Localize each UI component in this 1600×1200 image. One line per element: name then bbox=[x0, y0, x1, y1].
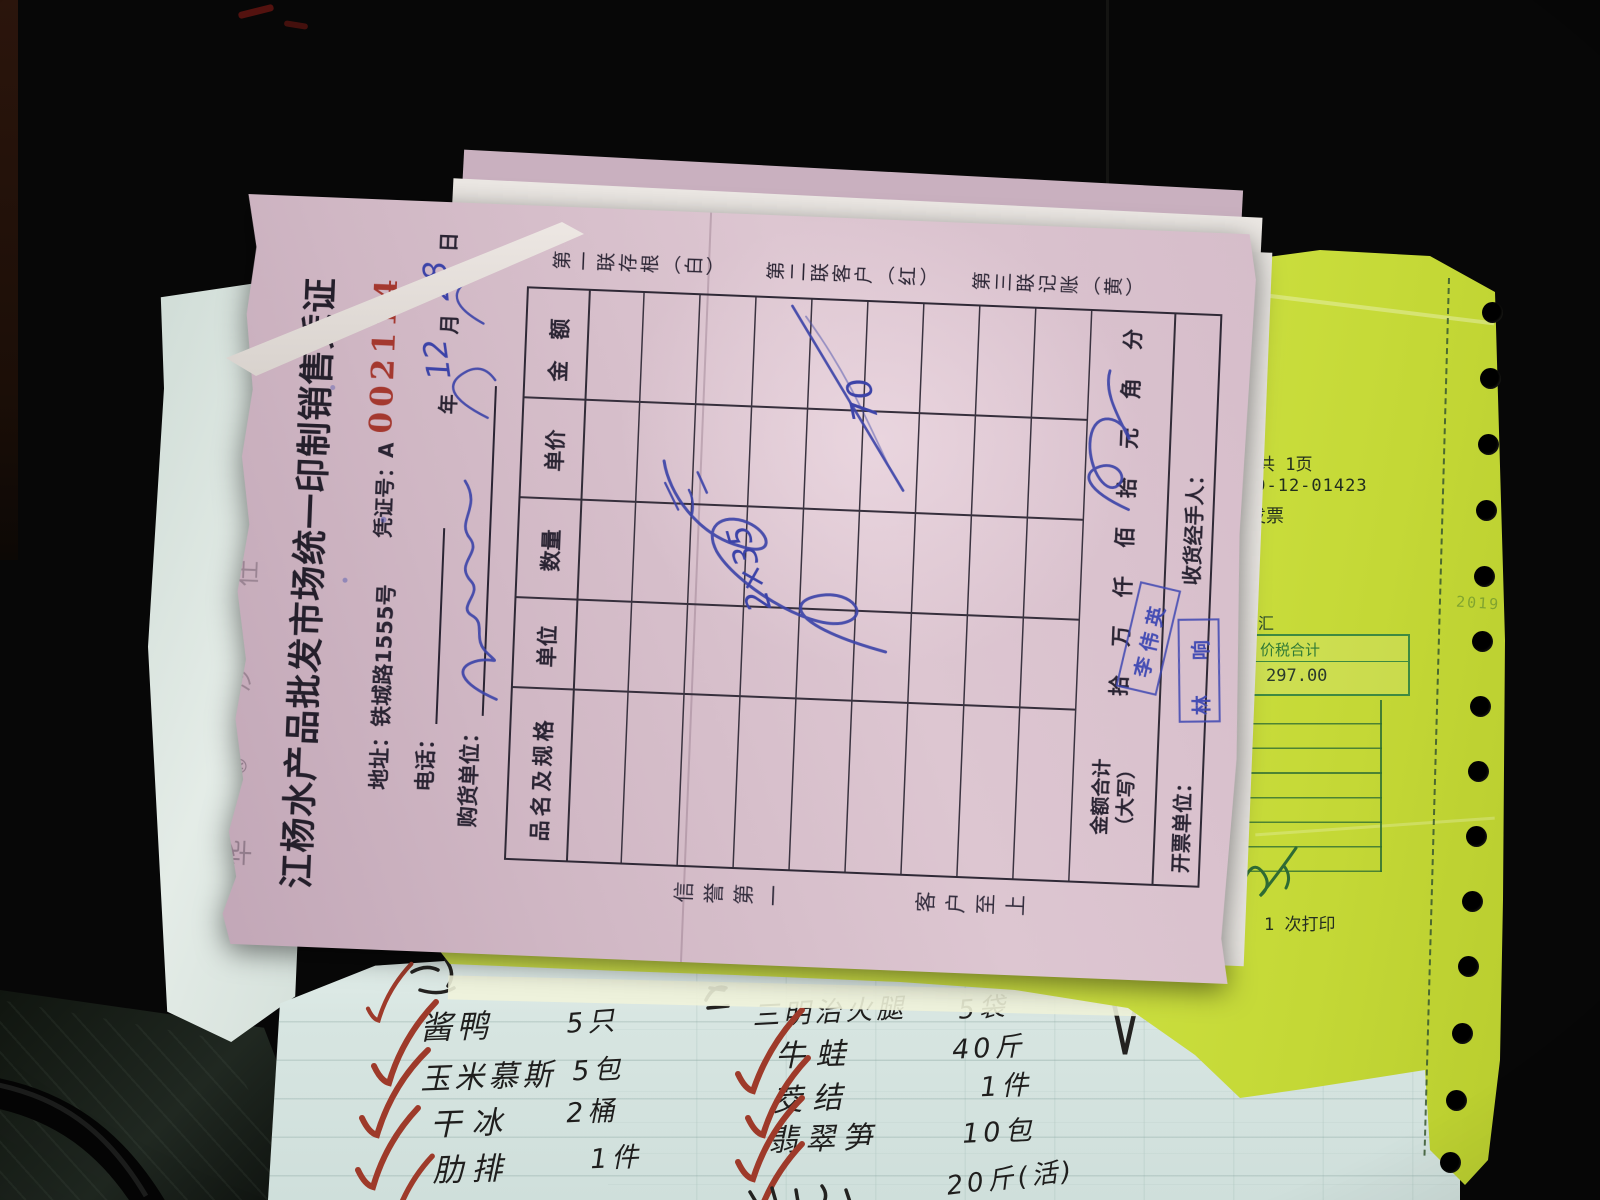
red-mark-1 bbox=[238, 4, 275, 20]
yellow-print-note: 1 次打印 bbox=[1264, 910, 1335, 935]
photo-of-receipts: 酱鸭 5只 玉米慕斯 5包 干冰 2桶 肋排 1件 三明治火腿 5袋 牛蛙 40… bbox=[0, 0, 1600, 1200]
yellow-total-label: 价税合计 bbox=[1250, 636, 1408, 662]
handwritten-amount: 70 bbox=[839, 374, 887, 424]
yellow-green-scribble bbox=[1238, 842, 1328, 912]
punch-hole bbox=[1474, 566, 1495, 587]
background-wood-strip bbox=[0, 0, 18, 560]
punch-hole bbox=[1482, 302, 1503, 323]
punch-hole bbox=[1480, 368, 1501, 389]
punch-hole bbox=[1472, 631, 1493, 652]
punch-hole bbox=[1468, 761, 1489, 782]
yellow-faint-year: 2019 bbox=[1455, 592, 1500, 613]
name-stamp-linxiang: 林 响 bbox=[1177, 618, 1220, 723]
punch-hole bbox=[1458, 956, 1479, 977]
punch-hole bbox=[1466, 826, 1487, 847]
punch-hole bbox=[1452, 1023, 1473, 1044]
yellow-total-box: 价税合计 297.00 bbox=[1248, 634, 1410, 696]
red-mark-2 bbox=[284, 20, 309, 30]
punch-hole bbox=[1470, 696, 1491, 717]
yellow-page-info: 共 1页 bbox=[1258, 450, 1312, 475]
yellow-total-value: 297.00 bbox=[1250, 662, 1408, 686]
punch-hole bbox=[1476, 500, 1497, 521]
punch-hole bbox=[1440, 1152, 1461, 1173]
punch-hole bbox=[1478, 434, 1499, 455]
punch-hole bbox=[1462, 891, 1483, 912]
background-door-seam bbox=[1106, 0, 1109, 210]
punch-hole bbox=[1446, 1090, 1467, 1111]
